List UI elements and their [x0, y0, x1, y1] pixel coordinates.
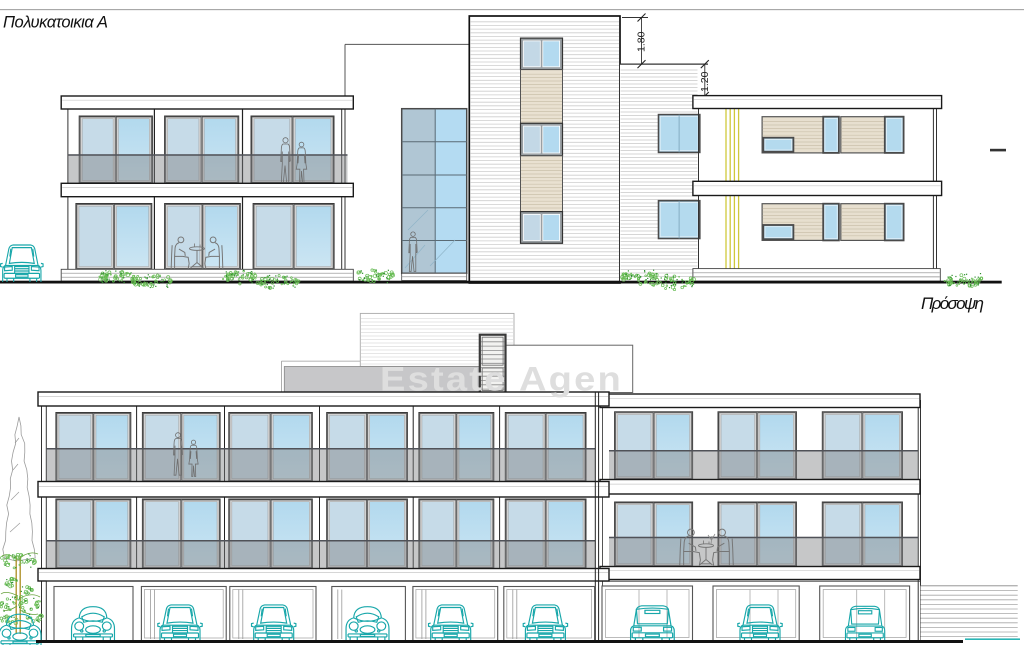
- svg-text:1.20: 1.20: [699, 71, 711, 92]
- svg-text:Estate Agen: Estate Agen: [380, 361, 623, 399]
- svg-text:1.80: 1.80: [636, 31, 648, 52]
- svg-text:Πολυκατοικια Α: Πολυκατοικια Α: [3, 14, 108, 32]
- svg-text:Πρόσοψη: Πρόσοψη: [921, 294, 984, 313]
